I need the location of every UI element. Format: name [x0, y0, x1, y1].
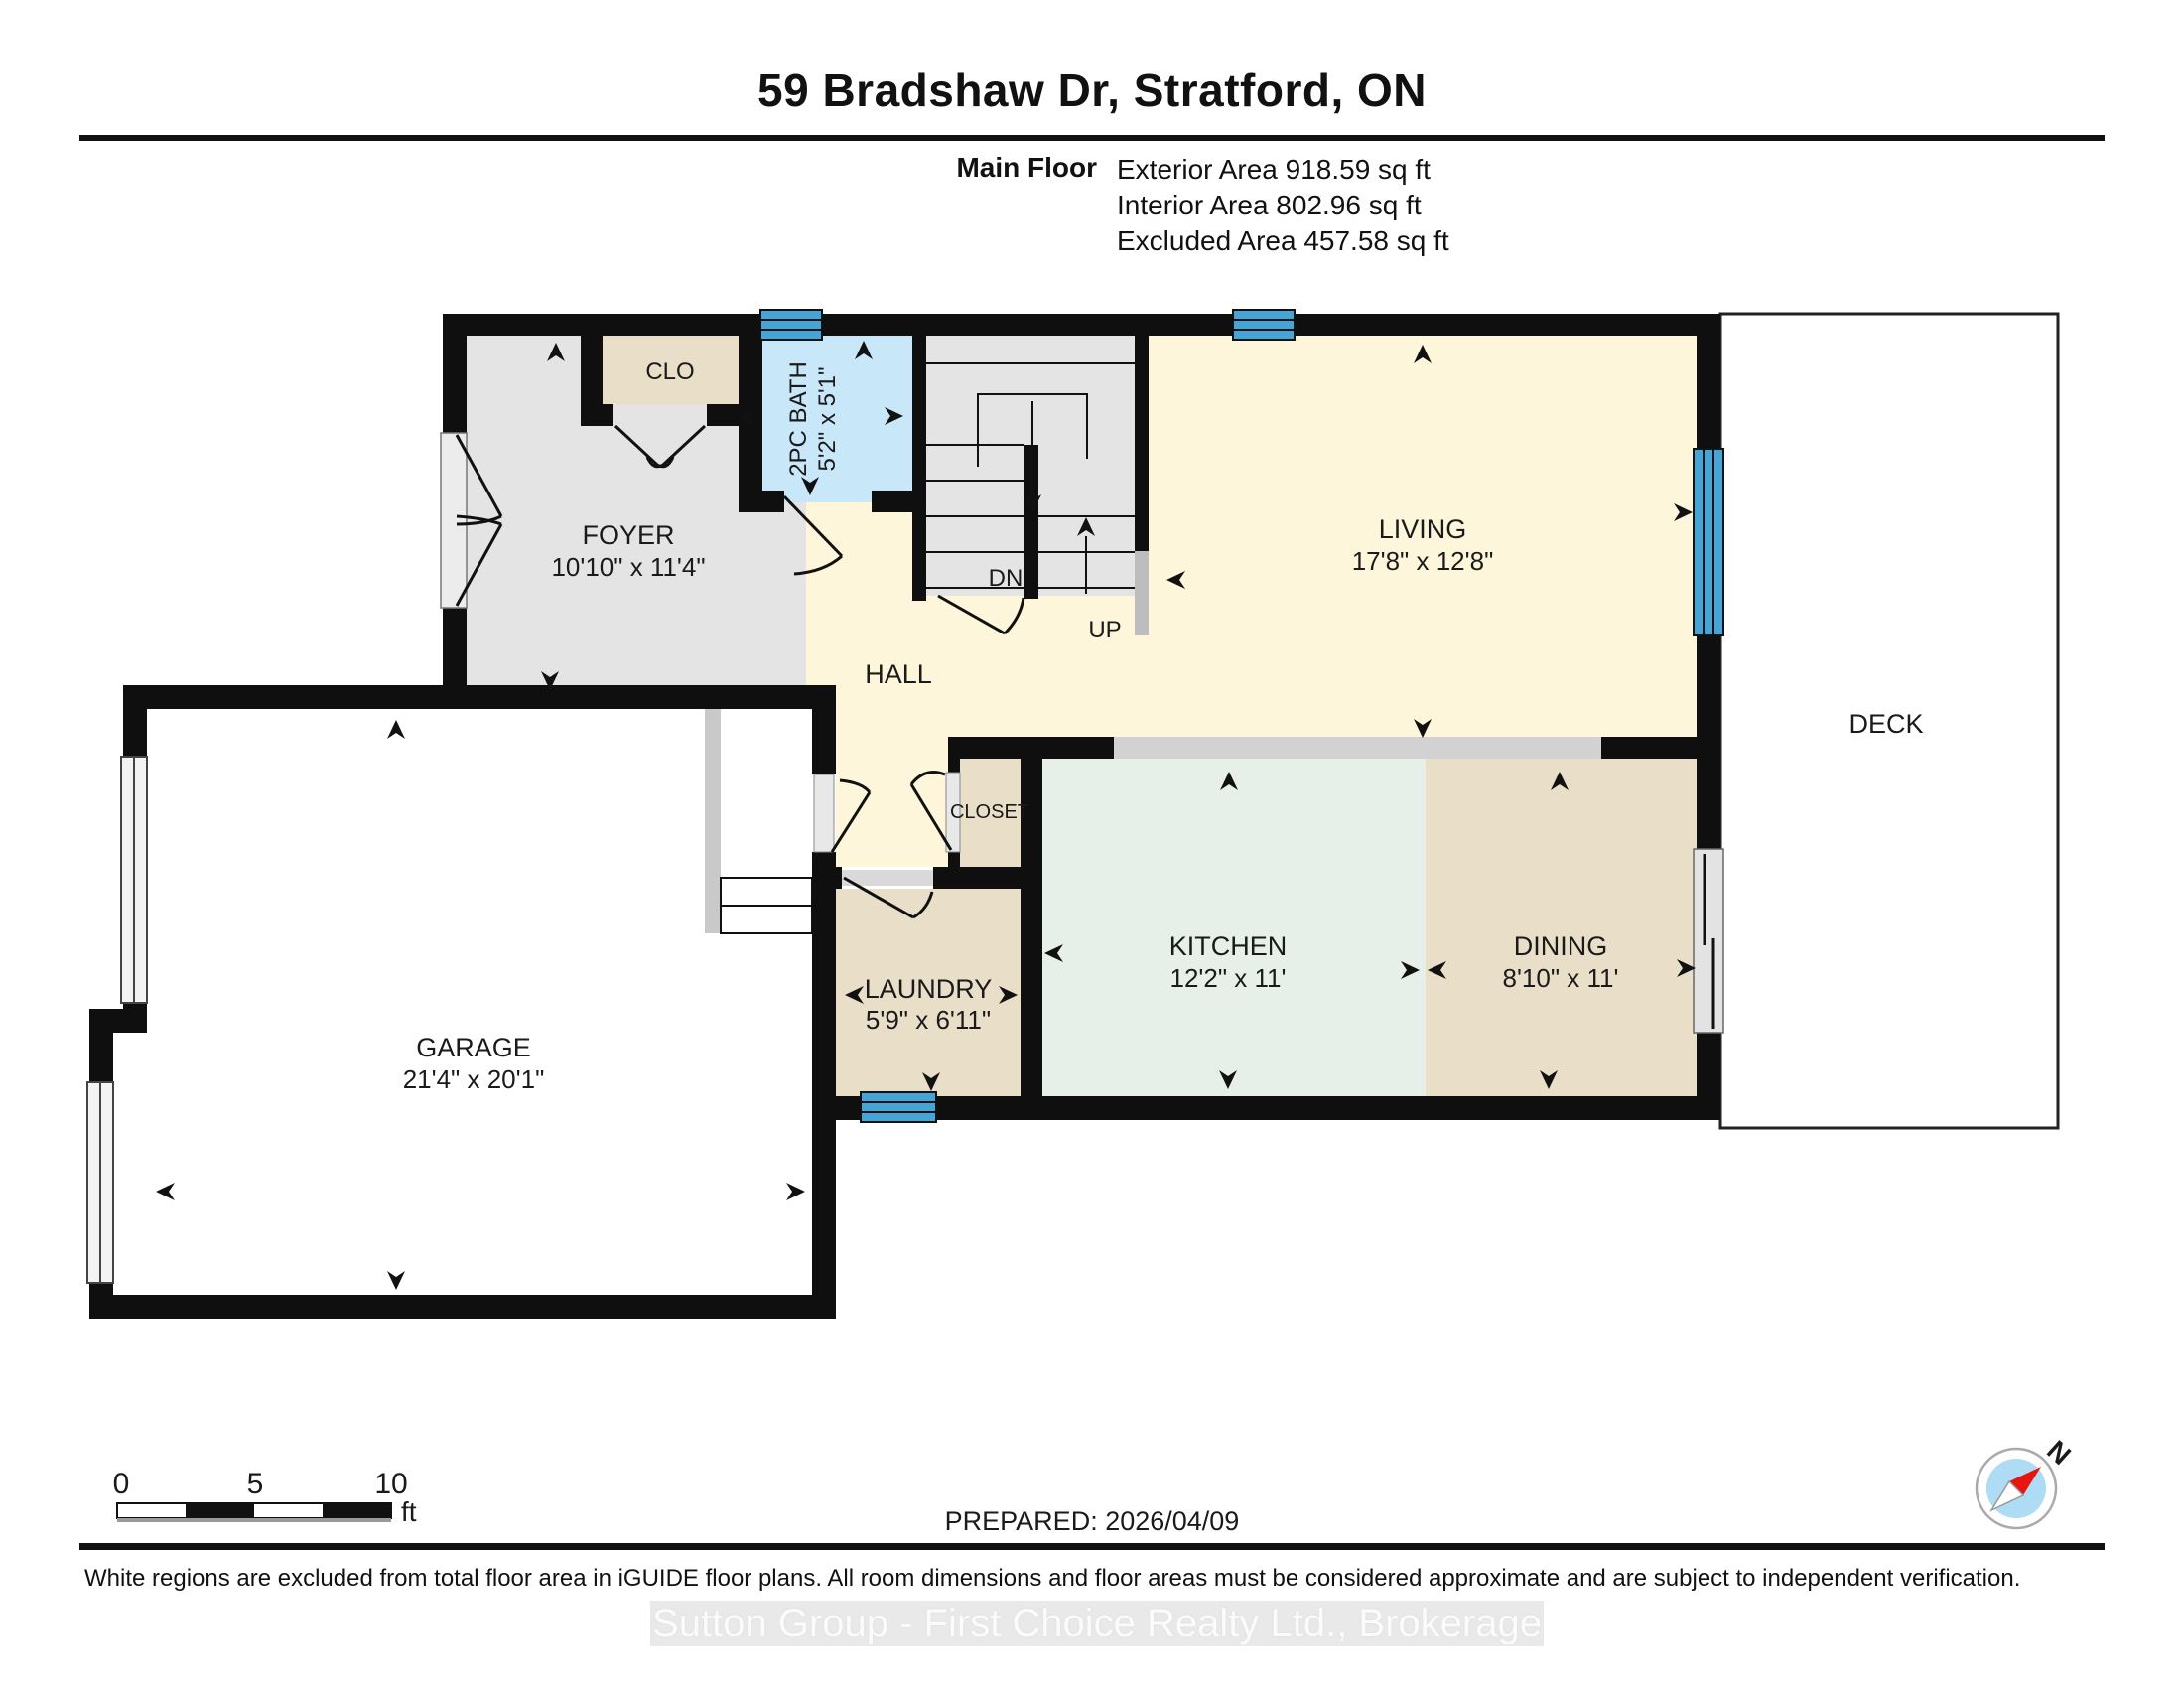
disclaimer-text: White regions are excluded from total fl…: [84, 1565, 2100, 1593]
window-living-slider: [1694, 449, 1723, 635]
garage-corridor-rail: [705, 709, 721, 933]
window-bath-top: [760, 310, 822, 340]
label-bath-dims: 5'2" x 5'1": [814, 367, 841, 472]
garage-door-jamb: [814, 774, 834, 852]
label-dn: DN: [989, 565, 1024, 592]
compass-icon: N: [1977, 1435, 2077, 1528]
label-garage: GARAGE: [416, 1033, 531, 1062]
scale-bar: 0 5 10 ft: [113, 1468, 417, 1527]
patio-door: [1694, 849, 1723, 1033]
floorplan-sheet: 59 Bradshaw Dr, Stratford, ON Main Floor…: [0, 0, 2184, 1688]
label-deck: DECK: [1848, 709, 1923, 739]
garage-step-2: [721, 906, 812, 933]
label-clo: CLO: [645, 358, 694, 385]
kitchen-counter: [1114, 737, 1601, 759]
label-foyer: FOYER: [582, 520, 674, 550]
garage-step-1: [721, 878, 812, 906]
brokerage-watermark: Sutton Group - First Choice Realty Ltd.,…: [650, 1601, 1544, 1646]
label-laundry: LAUNDRY: [865, 974, 993, 1004]
room-kitchen-floor: [1042, 759, 1426, 1096]
stairs-rail-gray: [1135, 551, 1149, 635]
label-bath: 2PC BATH: [785, 361, 812, 477]
label-kitchen-dims: 12'2" x 11': [1170, 963, 1287, 993]
front-door-recess: [441, 433, 467, 608]
label-laundry-dims: 5'9" x 6'11": [866, 1005, 991, 1035]
label-garage-dims: 21'4" x 20'1": [403, 1064, 545, 1094]
label-kitchen: KITCHEN: [1169, 931, 1288, 961]
label-living: LIVING: [1379, 514, 1467, 544]
label-dining-dims: 8'10" x 11': [1503, 963, 1619, 993]
footer-divider: [79, 1543, 2105, 1550]
label-up: UP: [1088, 617, 1121, 643]
garage-window-lower: [87, 1082, 113, 1283]
scale-tick-5: 5: [247, 1468, 264, 1500]
window-living-top: [1233, 310, 1295, 340]
label-hall: HALL: [865, 659, 932, 689]
label-living-dims: 17'8" x 12'8": [1352, 546, 1494, 576]
prepared-date: PREPARED: 2026/04/09: [945, 1506, 1240, 1536]
window-laundry: [861, 1092, 936, 1122]
garage-window-upper: [121, 757, 147, 1003]
floorplan-drawing: FOYER 10'10" x 11'4" CLO 2PC BATH 5'2" x…: [0, 0, 2184, 1688]
scale-unit: ft: [401, 1496, 417, 1527]
label-dining: DINING: [1514, 931, 1608, 961]
scale-tick-0: 0: [113, 1468, 130, 1500]
label-foyer-dims: 10'10" x 11'4": [551, 552, 705, 582]
room-dining-floor: [1426, 759, 1697, 1096]
label-closet: CLOSET: [950, 801, 1029, 823]
